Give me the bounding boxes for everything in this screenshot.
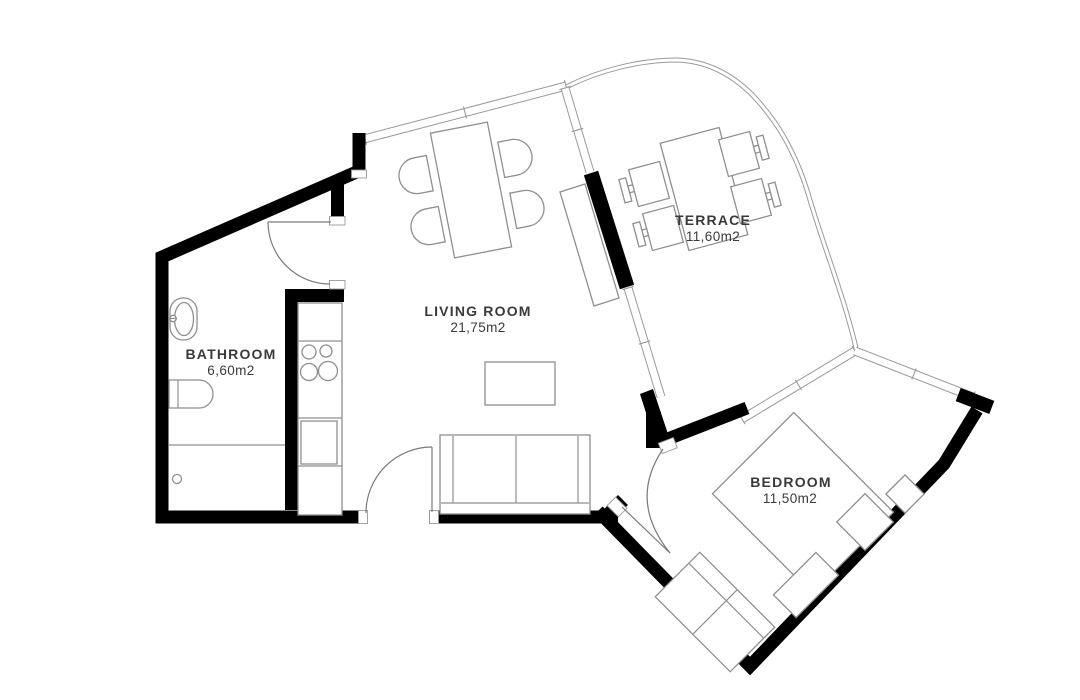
jamb-wall-post <box>352 170 367 178</box>
kitchen <box>298 303 342 515</box>
wall-bedroom-top-left <box>660 408 747 442</box>
jamb-bathroom-door-bottom <box>330 281 346 290</box>
living-room-area: 21,75m2 <box>450 320 505 335</box>
jamb-entrance-right <box>430 511 439 524</box>
bathroom-area: 6,60m2 <box>207 363 254 378</box>
window-band-living-terrace-upper <box>559 86 590 172</box>
wall-bathroom-kitchen <box>285 289 298 510</box>
shower-area <box>169 445 285 484</box>
floor-plan-drawing: LIVING ROOM 21,75m2 TERRACE 11,60m2 BATH… <box>0 0 1080 700</box>
dining-chair <box>510 187 547 228</box>
oven <box>301 421 337 464</box>
terrace-chair <box>617 162 669 210</box>
entrance-door <box>366 447 432 513</box>
window-band-bedroom-right <box>855 351 975 403</box>
coffee-table <box>485 362 555 405</box>
jamb-bathroom-door-top <box>330 217 346 226</box>
shower-drain <box>173 475 182 484</box>
terrace-area: 11,60m2 <box>686 229 740 244</box>
dining-chair <box>396 155 433 196</box>
kitchen-counter <box>298 303 342 515</box>
bathroom-door-arc <box>268 222 330 284</box>
bathroom-label: BATHROOM <box>186 346 277 362</box>
bedroom-label: BEDROOM <box>750 474 832 490</box>
dining-chair <box>408 206 445 247</box>
nightstand <box>886 475 924 513</box>
terrace-chair <box>719 128 771 176</box>
bathroom-fixtures <box>169 298 285 484</box>
window-band-bedroom-left <box>739 346 858 424</box>
wall-corner-stub <box>646 412 661 448</box>
bathroom-door <box>268 222 331 284</box>
terrace-label: TERRACE <box>675 212 751 228</box>
living-room-label: LIVING ROOM <box>424 303 531 319</box>
sofa <box>440 435 590 514</box>
floor-plan: LIVING ROOM 21,75m2 TERRACE 11,60m2 BATH… <box>0 0 1080 700</box>
bedroom-area: 11,50m2 <box>763 491 817 506</box>
window-band-living-terrace-lower <box>622 286 661 397</box>
toilet <box>169 380 213 408</box>
dining-chair <box>498 136 535 177</box>
wall-bathroom-living <box>331 176 344 218</box>
entrance-door-arc <box>366 447 432 513</box>
bedroom-door-arc <box>647 449 670 553</box>
bathroom-sink <box>169 298 197 340</box>
